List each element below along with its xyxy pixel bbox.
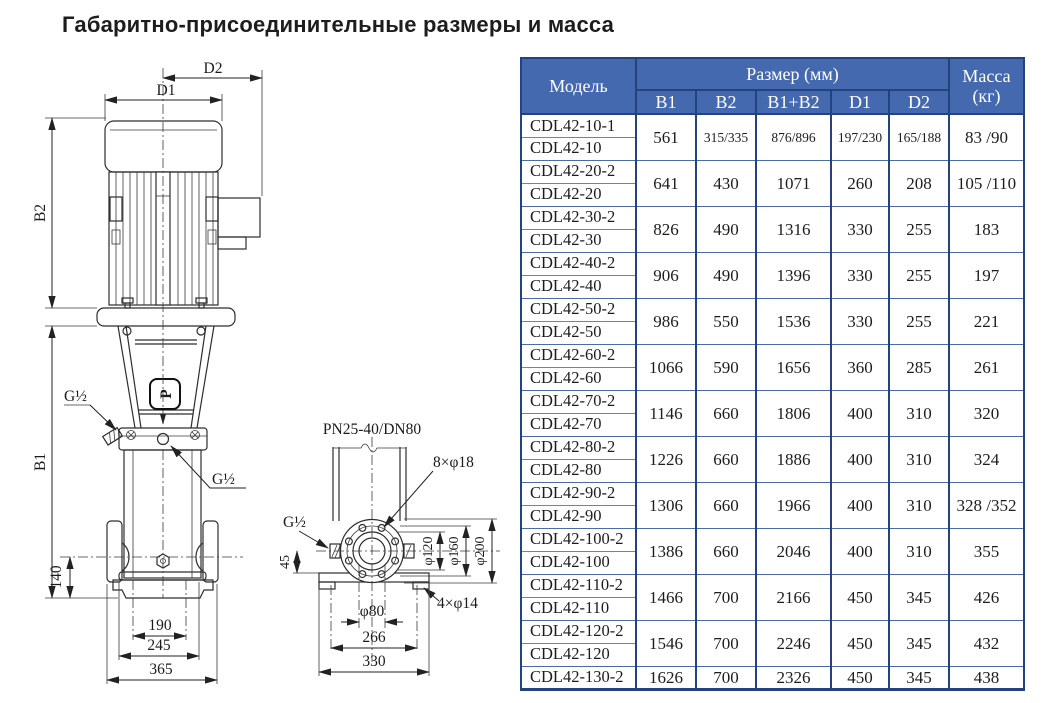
- header-d2: D2: [889, 90, 949, 114]
- dia-160-label: φ160: [447, 536, 462, 565]
- value-cell: 1066: [636, 344, 696, 390]
- bolt-holes-label: 8×φ18: [433, 454, 474, 471]
- value-cell: 450: [831, 620, 889, 666]
- model-cell: CDL42-60: [521, 367, 636, 390]
- brand-logo: P: [150, 379, 180, 409]
- value-cell: 255: [889, 206, 949, 252]
- front-dimensions: D1 D2 B2 B1 140: [32, 60, 262, 684]
- lantern: [118, 326, 214, 428]
- model-cell: CDL42-110-2: [521, 574, 636, 597]
- value-cell: 255: [889, 252, 949, 298]
- value-cell: 660: [696, 390, 756, 436]
- value-cell: 324: [949, 436, 1024, 482]
- value-cell: 438: [949, 666, 1024, 689]
- value-cell: 700: [696, 620, 756, 666]
- header-d1: D1: [831, 90, 889, 114]
- model-cell: CDL42-100: [521, 551, 636, 574]
- connection-label: PN25-40/DN80: [323, 421, 421, 438]
- value-cell: 330: [831, 252, 889, 298]
- dim-365-label: 365: [149, 661, 173, 678]
- model-cell: CDL42-130-2: [521, 666, 636, 689]
- port-side-label: G½: [64, 388, 87, 405]
- dim-b2-label: B2: [32, 204, 49, 222]
- dim-266-label: 266: [362, 629, 386, 646]
- model-cell: CDL42-60-2: [521, 344, 636, 367]
- table-row: CDL42-60-210665901656360285261: [521, 344, 1024, 367]
- pump-head: [103, 428, 207, 450]
- model-cell: CDL42-40: [521, 275, 636, 298]
- table-row: CDL42-50-29865501536330255221: [521, 298, 1024, 321]
- dim-b1-label: B1: [32, 453, 49, 471]
- table-row: CDL42-120-215467002246450345432: [521, 620, 1024, 643]
- table-row: CDL42-30-28264901316330255183: [521, 206, 1024, 229]
- value-cell: 641: [636, 160, 696, 206]
- value-cell: 345: [889, 666, 949, 689]
- value-cell: 1546: [636, 620, 696, 666]
- value-cell: 1466: [636, 574, 696, 620]
- table-row: CDL42-130-216267002326450345438: [521, 666, 1024, 689]
- table-row: CDL42-10-1561315/335876/896197/230165/18…: [521, 114, 1024, 137]
- model-cell: CDL42-20-2: [521, 160, 636, 183]
- pump-front-view: P: [32, 60, 262, 684]
- value-cell: 2046: [756, 528, 831, 574]
- value-cell: 255: [889, 298, 949, 344]
- table-row: CDL42-80-212266601886400310324: [521, 436, 1024, 459]
- model-cell: CDL42-80: [521, 459, 636, 482]
- model-cell: CDL42-30-2: [521, 206, 636, 229]
- header-mass: Масса (кг): [949, 58, 1024, 114]
- value-cell: 221: [949, 298, 1024, 344]
- value-cell: 330: [831, 206, 889, 252]
- value-cell: 360: [831, 344, 889, 390]
- model-cell: CDL42-50-2: [521, 298, 636, 321]
- value-cell: 328 /352: [949, 482, 1024, 528]
- motor-cap: [105, 121, 222, 172]
- header-b1b2: B1+B2: [756, 90, 831, 114]
- dimension-table: Модель Размер (мм) Масса (кг) B1 B2 B1+B…: [520, 57, 1025, 691]
- dim-d1-label: D1: [157, 82, 176, 99]
- model-cell: CDL42-10: [521, 137, 636, 160]
- value-cell: 310: [889, 528, 949, 574]
- logo-letter: P: [158, 389, 175, 399]
- flange-port-label: G½: [283, 514, 306, 531]
- dim-45-label: 45: [278, 555, 293, 569]
- value-cell: 197/230: [831, 114, 889, 160]
- table-row: CDL42-20-26414301071260208105 /110: [521, 160, 1024, 183]
- dia-80-label: φ80: [360, 603, 385, 620]
- model-cell: CDL42-90-2: [521, 482, 636, 505]
- value-cell: 490: [696, 206, 756, 252]
- value-cell: 590: [696, 344, 756, 390]
- value-cell: 1316: [756, 206, 831, 252]
- value-cell: 1071: [756, 160, 831, 206]
- model-cell: CDL42-30: [521, 229, 636, 252]
- value-cell: 430: [696, 160, 756, 206]
- value-cell: 1146: [636, 390, 696, 436]
- dim-140-label: 140: [48, 565, 65, 589]
- value-cell: 1656: [756, 344, 831, 390]
- model-cell: CDL42-100-2: [521, 528, 636, 551]
- value-cell: 197: [949, 252, 1024, 298]
- value-cell: 315/335: [696, 114, 756, 160]
- table-row: CDL42-40-29064901396330255197: [521, 252, 1024, 275]
- dim-245-label: 245: [147, 637, 171, 654]
- dim-330-label: 330: [362, 653, 386, 670]
- value-cell: 400: [831, 390, 889, 436]
- model-cell: CDL42-80-2: [521, 436, 636, 459]
- value-cell: 550: [696, 298, 756, 344]
- value-cell: 876/896: [756, 114, 831, 160]
- dim-190-label: 190: [148, 617, 172, 634]
- value-cell: 2166: [756, 574, 831, 620]
- value-cell: 432: [949, 620, 1024, 666]
- value-cell: 345: [889, 620, 949, 666]
- size-table-body: CDL42-10-1561315/335876/896197/230165/18…: [521, 114, 1024, 689]
- table-row: CDL42-110-214667002166450345426: [521, 574, 1024, 597]
- value-cell: 355: [949, 528, 1024, 574]
- header-size-group: Размер (мм): [636, 58, 949, 90]
- model-cell: CDL42-70-2: [521, 390, 636, 413]
- catalog-page: Габаритно-присоединительные размеры и ма…: [0, 0, 1042, 703]
- value-cell: 906: [636, 252, 696, 298]
- value-cell: 285: [889, 344, 949, 390]
- value-cell: 208: [889, 160, 949, 206]
- model-cell: CDL42-120: [521, 643, 636, 666]
- value-cell: 330: [831, 298, 889, 344]
- value-cell: 450: [831, 666, 889, 689]
- value-cell: 1806: [756, 390, 831, 436]
- terminal-box: [218, 198, 260, 249]
- value-cell: 1386: [636, 528, 696, 574]
- value-cell: 2326: [756, 666, 831, 689]
- value-cell: 986: [636, 298, 696, 344]
- model-cell: CDL42-10-1: [521, 114, 636, 137]
- model-cell: CDL42-90: [521, 505, 636, 528]
- value-cell: 826: [636, 206, 696, 252]
- value-cell: 320: [949, 390, 1024, 436]
- value-cell: 450: [831, 574, 889, 620]
- value-cell: 400: [831, 528, 889, 574]
- dim-d2-label: D2: [204, 60, 223, 77]
- value-cell: 1226: [636, 436, 696, 482]
- value-cell: 660: [696, 436, 756, 482]
- value-cell: 1396: [756, 252, 831, 298]
- value-cell: 165/188: [889, 114, 949, 160]
- model-cell: CDL42-70: [521, 413, 636, 436]
- header-b1: B1: [636, 90, 696, 114]
- value-cell: 310: [889, 390, 949, 436]
- base-holes-label: 4×φ14: [437, 595, 478, 612]
- flange-base-view: PN25-40/DN80 8×φ18 φ120 φ160 φ200 G½: [278, 421, 500, 676]
- value-cell: 1626: [636, 666, 696, 689]
- port-front-label: G½: [212, 471, 235, 488]
- value-cell: 105 /110: [949, 160, 1024, 206]
- value-cell: 400: [831, 436, 889, 482]
- value-cell: 1536: [756, 298, 831, 344]
- table-row: CDL42-100-213866602046400310355: [521, 528, 1024, 551]
- value-cell: 183: [949, 206, 1024, 252]
- value-cell: 561: [636, 114, 696, 160]
- header-b2: B2: [696, 90, 756, 114]
- pipe-column: [333, 444, 406, 521]
- value-cell: 660: [696, 482, 756, 528]
- value-cell: 1966: [756, 482, 831, 528]
- model-cell: CDL42-120-2: [521, 620, 636, 643]
- value-cell: 83 /90: [949, 114, 1024, 160]
- value-cell: 700: [696, 574, 756, 620]
- value-cell: 426: [949, 574, 1024, 620]
- value-cell: 1306: [636, 482, 696, 528]
- value-cell: 310: [889, 482, 949, 528]
- model-cell: CDL42-50: [521, 321, 636, 344]
- dia-200-label: φ200: [473, 536, 488, 565]
- value-cell: 345: [889, 574, 949, 620]
- value-cell: 2246: [756, 620, 831, 666]
- front-port-circle: [158, 434, 169, 445]
- value-cell: 260: [831, 160, 889, 206]
- table-row: CDL42-90-213066601966400310328 /352: [521, 482, 1024, 505]
- value-cell: 261: [949, 344, 1024, 390]
- value-cell: 400: [831, 482, 889, 528]
- value-cell: 490: [696, 252, 756, 298]
- value-cell: 1886: [756, 436, 831, 482]
- model-cell: CDL42-40-2: [521, 252, 636, 275]
- motor-stool: [97, 308, 235, 326]
- model-cell: CDL42-20: [521, 183, 636, 206]
- model-cell: CDL42-110: [521, 597, 636, 620]
- header-model: Модель: [521, 58, 636, 114]
- value-cell: 660: [696, 528, 756, 574]
- table-row: CDL42-70-211466601806400310320: [521, 390, 1024, 413]
- value-cell: 700: [696, 666, 756, 689]
- table-header: Модель Размер (мм) Масса (кг) B1 B2 B1+B…: [521, 58, 1024, 114]
- dia-120-label: φ120: [421, 536, 436, 565]
- pump-dimension-drawing: P: [0, 0, 520, 703]
- value-cell: 310: [889, 436, 949, 482]
